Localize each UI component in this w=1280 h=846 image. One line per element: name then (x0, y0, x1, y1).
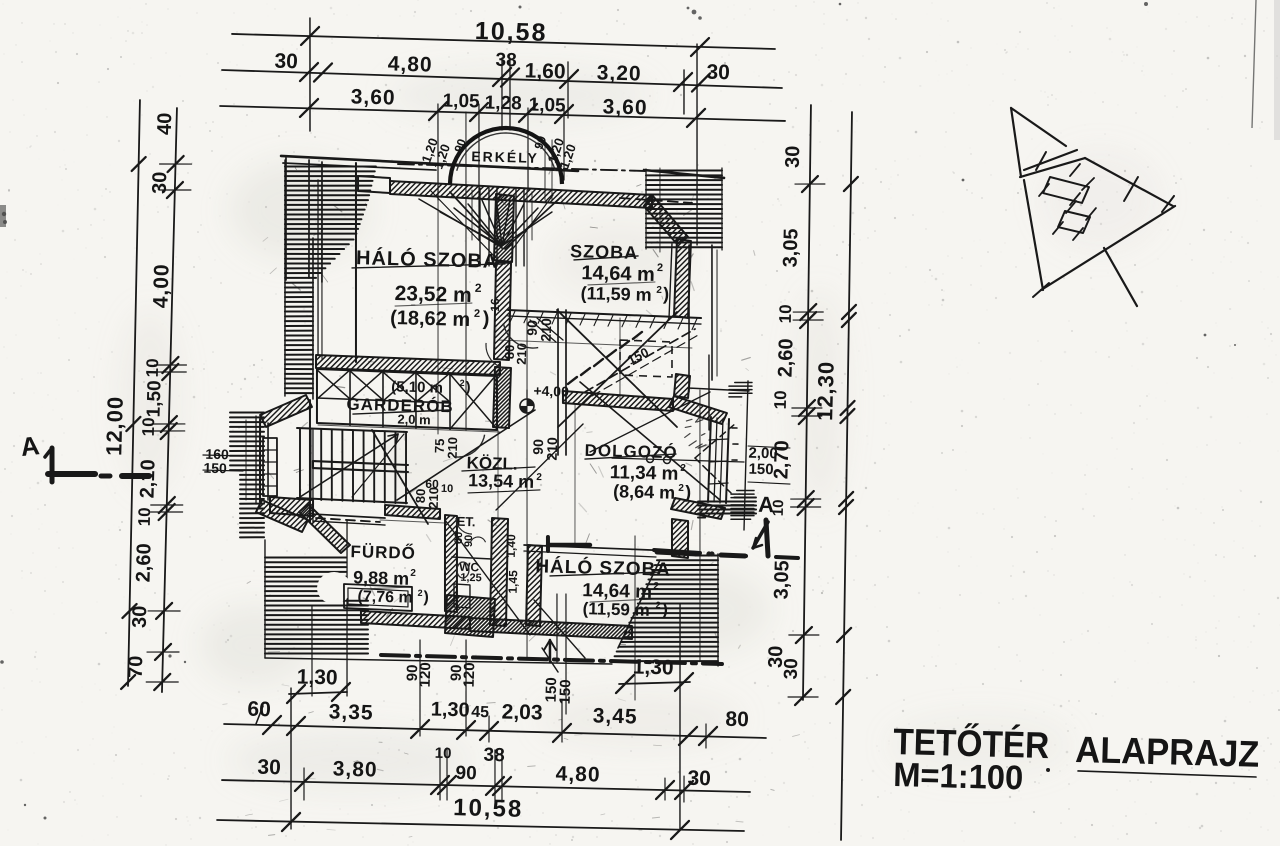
svg-text:2: 2 (655, 600, 660, 610)
svg-text:4,00: 4,00 (149, 263, 173, 308)
svg-text:70: 70 (125, 655, 148, 678)
svg-text:+4,00: +4,00 (533, 383, 569, 400)
svg-text:30: 30 (706, 61, 730, 85)
svg-text:1,05: 1,05 (442, 90, 480, 112)
svg-text:90: 90 (463, 535, 475, 548)
svg-text:HÁLÓ SZOBA: HÁLÓ SZOBA (535, 555, 671, 581)
svg-text:2: 2 (678, 483, 684, 494)
svg-text:80: 80 (725, 708, 749, 732)
svg-text:10: 10 (135, 507, 154, 526)
svg-text:2: 2 (410, 568, 416, 579)
svg-text:30: 30 (274, 50, 298, 74)
svg-text:3,45: 3,45 (592, 704, 637, 728)
svg-text:210: 210 (445, 437, 461, 459)
svg-text:12,30: 12,30 (812, 360, 839, 421)
svg-text:150: 150 (748, 461, 773, 479)
svg-text:1,30: 1,30 (296, 665, 337, 689)
svg-text:1,30: 1,30 (632, 655, 673, 679)
svg-text:2: 2 (657, 262, 663, 274)
svg-text:10: 10 (776, 304, 795, 323)
svg-text:2,0 m: 2,0 m (397, 412, 431, 428)
svg-text:16: 16 (488, 298, 502, 312)
svg-text:45: 45 (471, 704, 489, 721)
svg-text:2: 2 (653, 581, 659, 592)
svg-text:2,03: 2,03 (501, 700, 542, 724)
svg-text:10: 10 (770, 499, 787, 516)
svg-text:M=1:100: M=1:100 (893, 756, 1024, 797)
svg-text:): ) (662, 600, 668, 619)
svg-text:3,20: 3,20 (596, 61, 641, 85)
svg-text:2,60: 2,60 (775, 338, 798, 378)
svg-text:10: 10 (139, 417, 158, 436)
svg-text:ERKÉLY: ERKÉLY (471, 148, 539, 166)
svg-text:30: 30 (781, 658, 803, 680)
svg-text:12,00: 12,00 (101, 395, 128, 456)
svg-text:30: 30 (129, 605, 152, 628)
svg-text:1,40: 1,40 (504, 534, 519, 558)
svg-text:): ) (663, 284, 670, 304)
svg-text:30: 30 (782, 145, 805, 168)
svg-text:10,58: 10,58 (475, 17, 548, 47)
svg-text:30: 30 (257, 756, 281, 780)
svg-text:150: 150 (203, 460, 227, 477)
svg-text:(11,59 m: (11,59 m (580, 283, 652, 305)
svg-text:10: 10 (771, 390, 790, 409)
svg-text:2: 2 (536, 472, 542, 483)
svg-text:ALAPRAJZ: ALAPRAJZ (1075, 729, 1260, 775)
svg-text:2: 2 (474, 308, 480, 320)
svg-text:3,35: 3,35 (328, 700, 373, 724)
svg-text:): ) (685, 482, 692, 502)
svg-text:3,60: 3,60 (350, 85, 395, 109)
svg-text:1,05: 1,05 (528, 95, 566, 117)
svg-text:FÜRDŐ: FÜRDŐ (350, 542, 416, 563)
svg-text:10: 10 (441, 483, 454, 495)
svg-text:40: 40 (154, 112, 177, 135)
svg-text:3,05: 3,05 (771, 560, 794, 600)
svg-text:(18,62 m: (18,62 m (390, 307, 471, 331)
svg-text:): ) (423, 589, 429, 606)
svg-text:2,60: 2,60 (133, 543, 156, 583)
svg-text:1,45: 1,45 (506, 570, 521, 594)
svg-text:30: 30 (687, 767, 711, 791)
svg-text:2: 2 (475, 281, 482, 295)
svg-text:1,28: 1,28 (484, 92, 522, 114)
svg-text:4,80: 4,80 (555, 762, 600, 786)
svg-text:A: A (19, 430, 41, 462)
svg-text:3,60: 3,60 (602, 95, 647, 119)
svg-text:(8,64 m: (8,64 m (613, 481, 676, 503)
svg-text:1,60: 1,60 (524, 59, 565, 83)
svg-text:10: 10 (143, 358, 162, 377)
svg-text:120: 120 (417, 662, 435, 687)
svg-text:10: 10 (435, 745, 452, 762)
svg-text:4,80: 4,80 (387, 52, 432, 76)
svg-text:2: 2 (417, 588, 422, 598)
svg-text:10,58: 10,58 (453, 794, 524, 823)
svg-text:30: 30 (149, 171, 172, 194)
svg-text:210: 210 (426, 487, 442, 509)
svg-text:120: 120 (461, 662, 479, 687)
svg-text:2: 2 (656, 285, 662, 296)
svg-text:90: 90 (455, 763, 477, 785)
svg-text:3,05: 3,05 (780, 228, 803, 268)
svg-text:1,50: 1,50 (144, 380, 166, 418)
svg-text:38: 38 (495, 50, 517, 72)
